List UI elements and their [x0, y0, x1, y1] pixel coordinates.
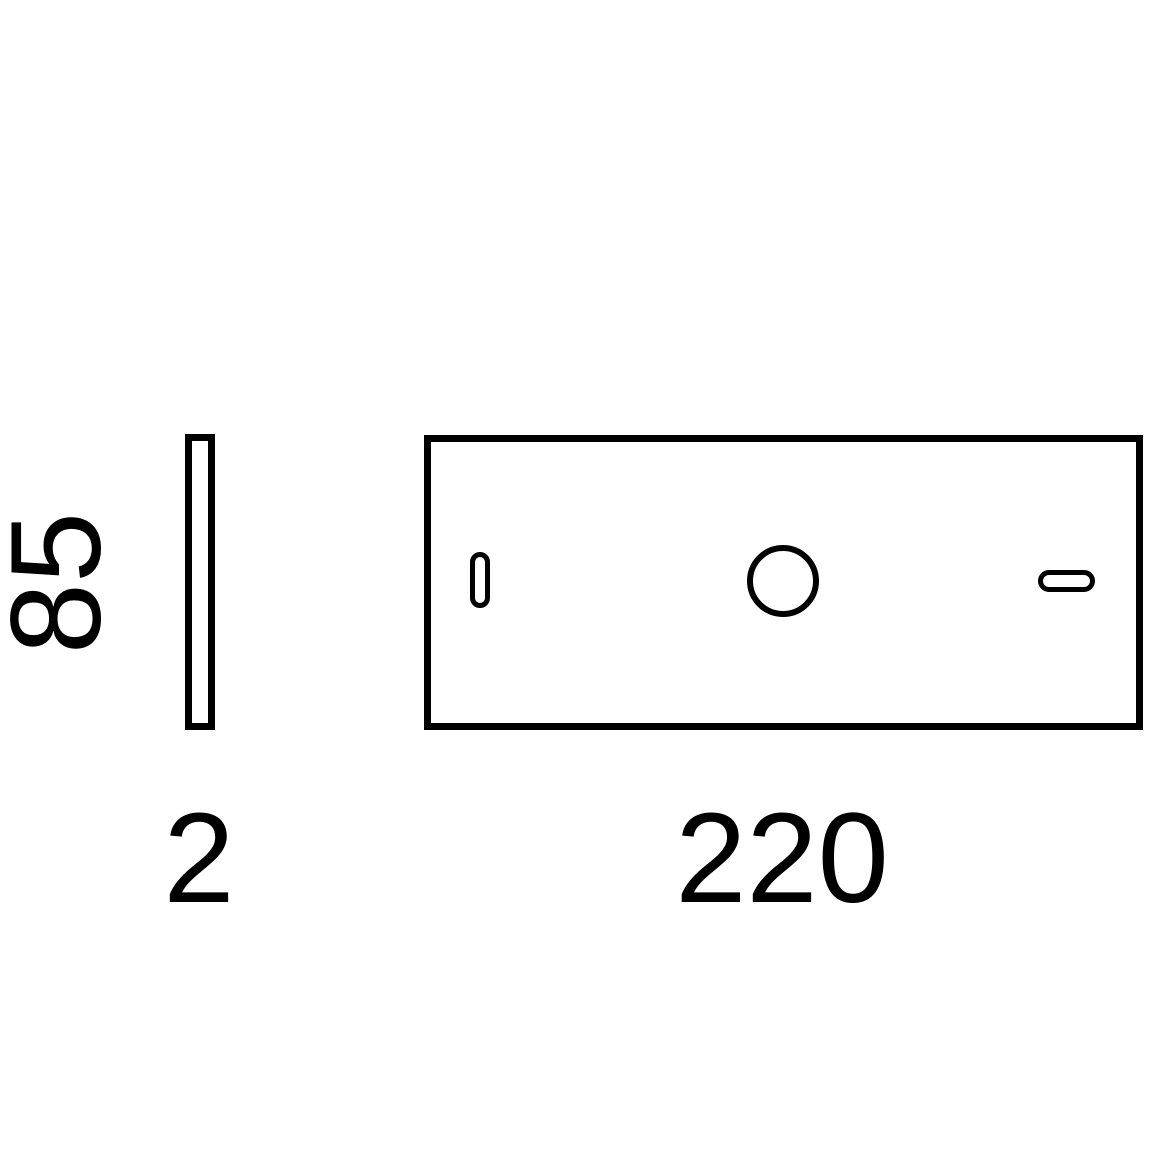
- technical-drawing-canvas: 85 2 220: [0, 0, 1160, 1160]
- left-vertical-mounting-slot: [470, 552, 490, 608]
- front-view-panel: [424, 435, 1143, 730]
- dimension-label-thickness: 2: [163, 795, 234, 923]
- center-hole: [747, 545, 819, 617]
- side-view-panel-profile: [185, 434, 215, 730]
- dimension-label-width: 220: [675, 795, 889, 923]
- right-horizontal-mounting-slot: [1038, 570, 1095, 592]
- dimension-label-height: 85: [0, 512, 121, 654]
